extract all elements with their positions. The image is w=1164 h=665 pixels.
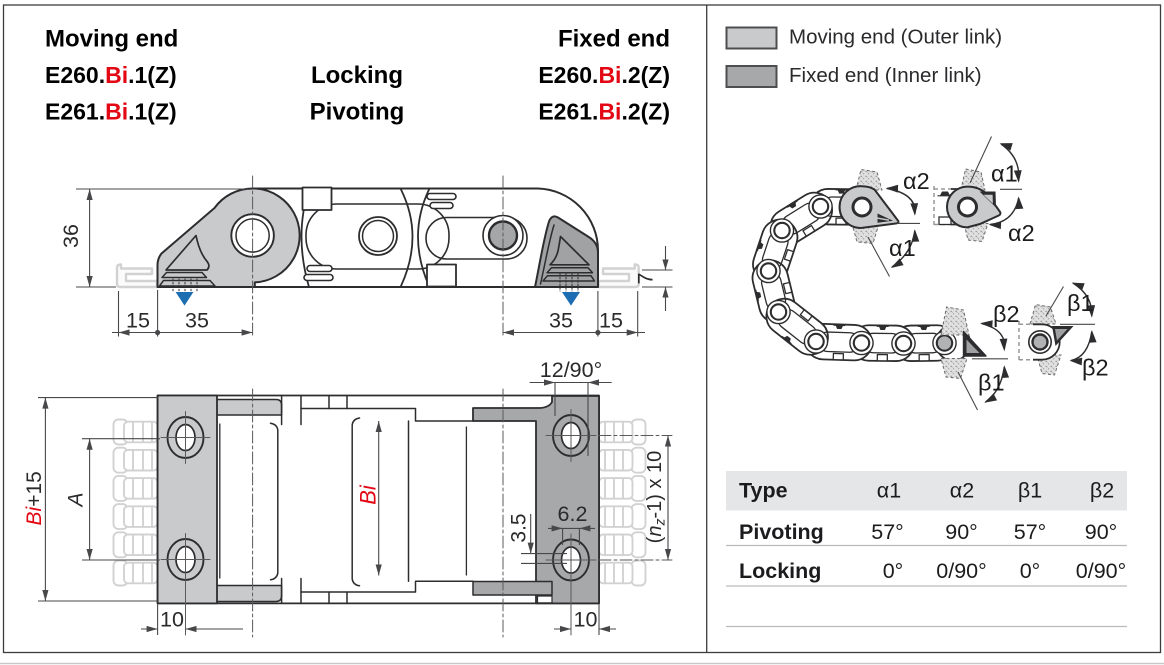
- svg-text:10: 10: [160, 608, 184, 632]
- svg-text:β1: β1: [1018, 479, 1042, 503]
- svg-text:Locking: Locking: [311, 62, 403, 89]
- svg-text:3.5: 3.5: [508, 513, 531, 542]
- svg-text:Fixed end: Fixed end: [558, 26, 670, 53]
- svg-text:β1: β1: [1067, 290, 1094, 316]
- svg-text:(nz-1) x 10: (nz-1) x 10: [644, 451, 668, 544]
- svg-text:6.2: 6.2: [558, 502, 588, 526]
- svg-text:Locking: Locking: [739, 559, 821, 583]
- svg-text:0°: 0°: [883, 559, 904, 583]
- svg-text:36: 36: [59, 224, 83, 248]
- svg-text:Bi+15: Bi+15: [23, 471, 46, 525]
- svg-text:Moving end: Moving end: [45, 26, 178, 53]
- svg-text:90°: 90°: [945, 520, 978, 544]
- svg-text:E260.Bi.1(Z): E260.Bi.1(Z): [45, 62, 177, 88]
- svg-text:β2: β2: [993, 301, 1020, 327]
- svg-text:Pivoting: Pivoting: [310, 99, 405, 126]
- svg-text:0/90°: 0/90°: [1076, 559, 1126, 583]
- svg-text:10: 10: [574, 608, 598, 632]
- svg-text:15: 15: [599, 309, 623, 333]
- svg-text:α2: α2: [950, 479, 974, 503]
- svg-text:Type: Type: [739, 479, 788, 503]
- svg-text:35: 35: [549, 309, 573, 333]
- svg-text:E260.Bi.2(Z): E260.Bi.2(Z): [538, 62, 670, 88]
- svg-text:β2: β2: [1090, 479, 1114, 503]
- svg-text:α1: α1: [991, 161, 1018, 187]
- svg-text:35: 35: [185, 309, 209, 333]
- svg-text:Bi: Bi: [355, 484, 380, 505]
- svg-text:57°: 57°: [1014, 520, 1047, 544]
- svg-text:12/90°: 12/90°: [540, 358, 602, 382]
- svg-text:β1: β1: [978, 370, 1005, 396]
- svg-text:Fixed end (Inner link): Fixed end (Inner link): [789, 64, 982, 87]
- svg-text:α2: α2: [1008, 220, 1035, 246]
- svg-text:0/90°: 0/90°: [936, 559, 986, 583]
- svg-text:α1: α1: [889, 235, 916, 261]
- svg-text:15: 15: [126, 309, 150, 333]
- svg-text:β2: β2: [1082, 355, 1109, 381]
- svg-text:A: A: [65, 492, 88, 508]
- svg-text:E261.Bi.1(Z): E261.Bi.1(Z): [45, 99, 177, 125]
- svg-text:Moving end (Outer link): Moving end (Outer link): [789, 26, 1002, 49]
- svg-text:α2: α2: [903, 168, 930, 194]
- svg-text:7: 7: [634, 273, 658, 285]
- svg-text:E261.Bi.2(Z): E261.Bi.2(Z): [538, 99, 670, 125]
- svg-text:0°: 0°: [1020, 559, 1041, 583]
- svg-text:α1: α1: [877, 479, 901, 503]
- svg-text:90°: 90°: [1085, 520, 1118, 544]
- svg-text:57°: 57°: [871, 520, 904, 544]
- svg-text:Pivoting: Pivoting: [739, 520, 824, 544]
